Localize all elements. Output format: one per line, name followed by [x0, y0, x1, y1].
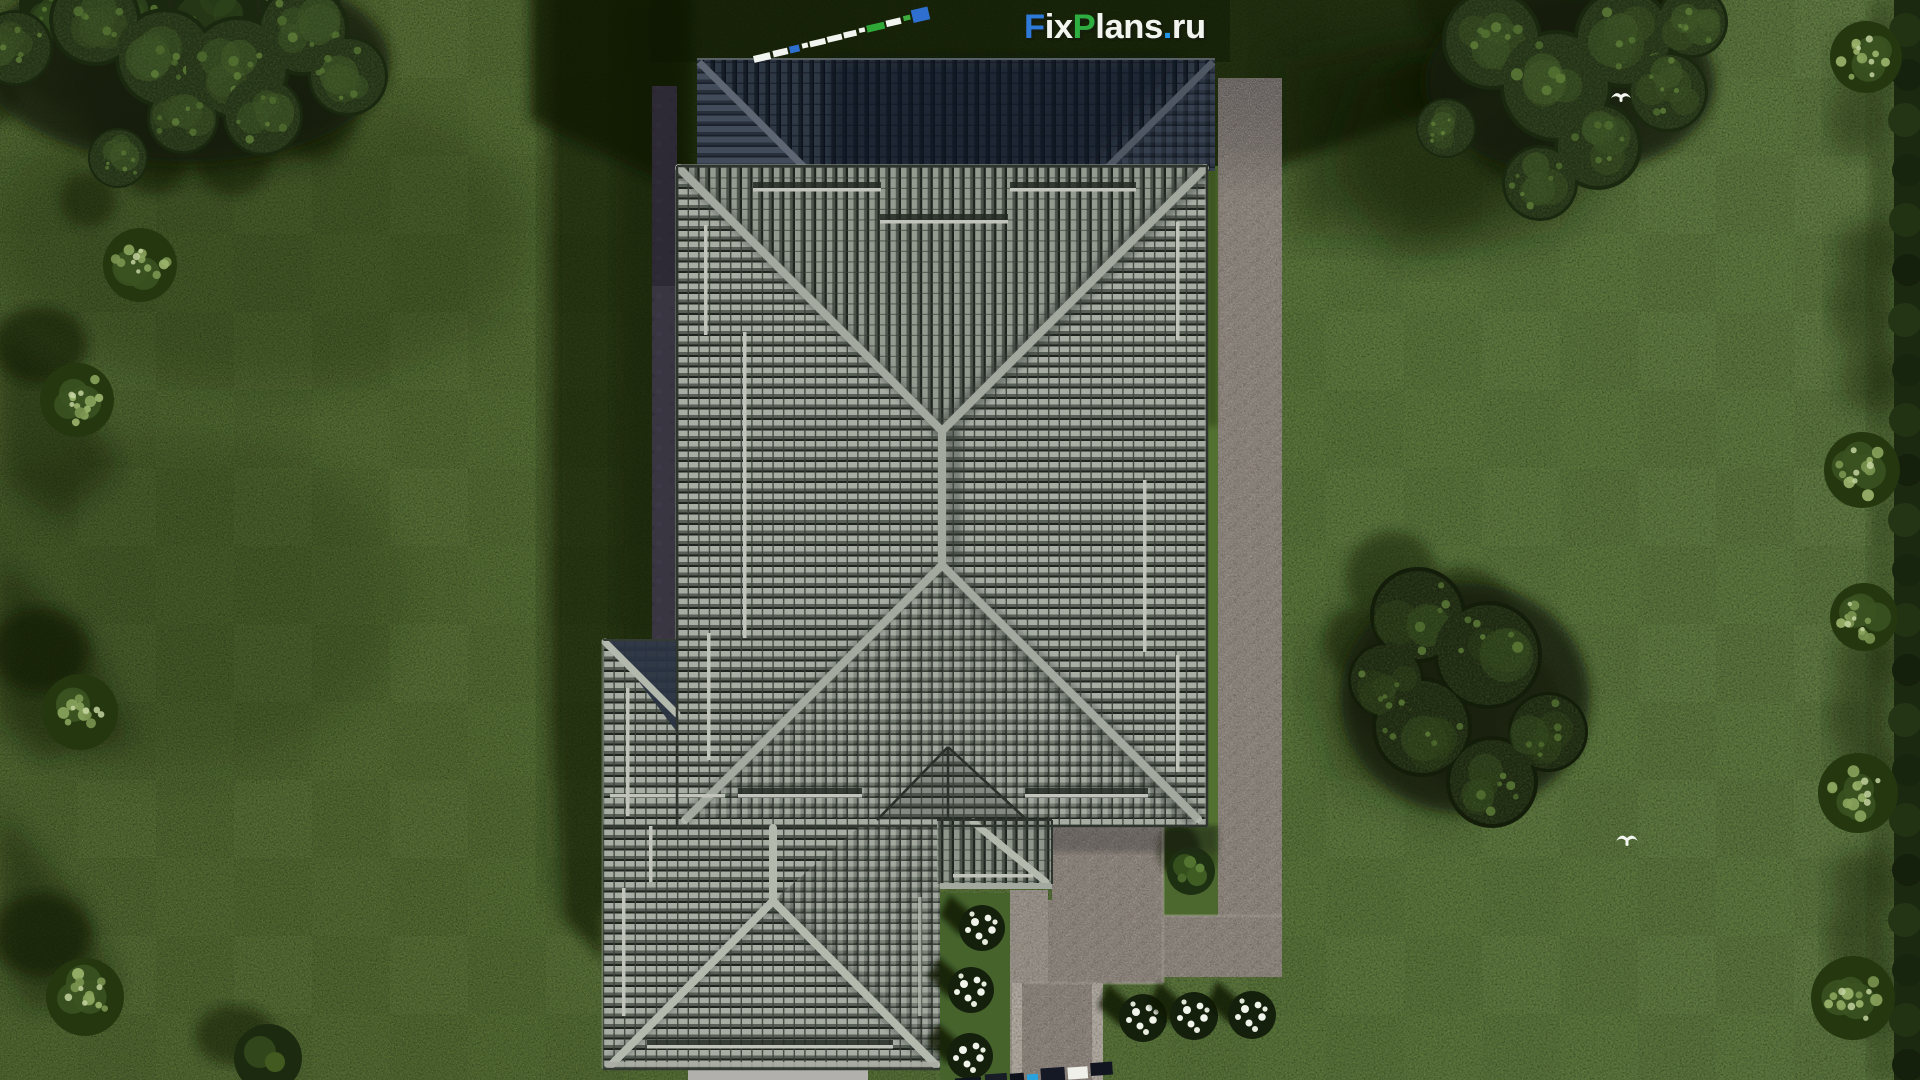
svg-text:FixPlans.ru: FixPlans.ru: [1024, 8, 1206, 46]
